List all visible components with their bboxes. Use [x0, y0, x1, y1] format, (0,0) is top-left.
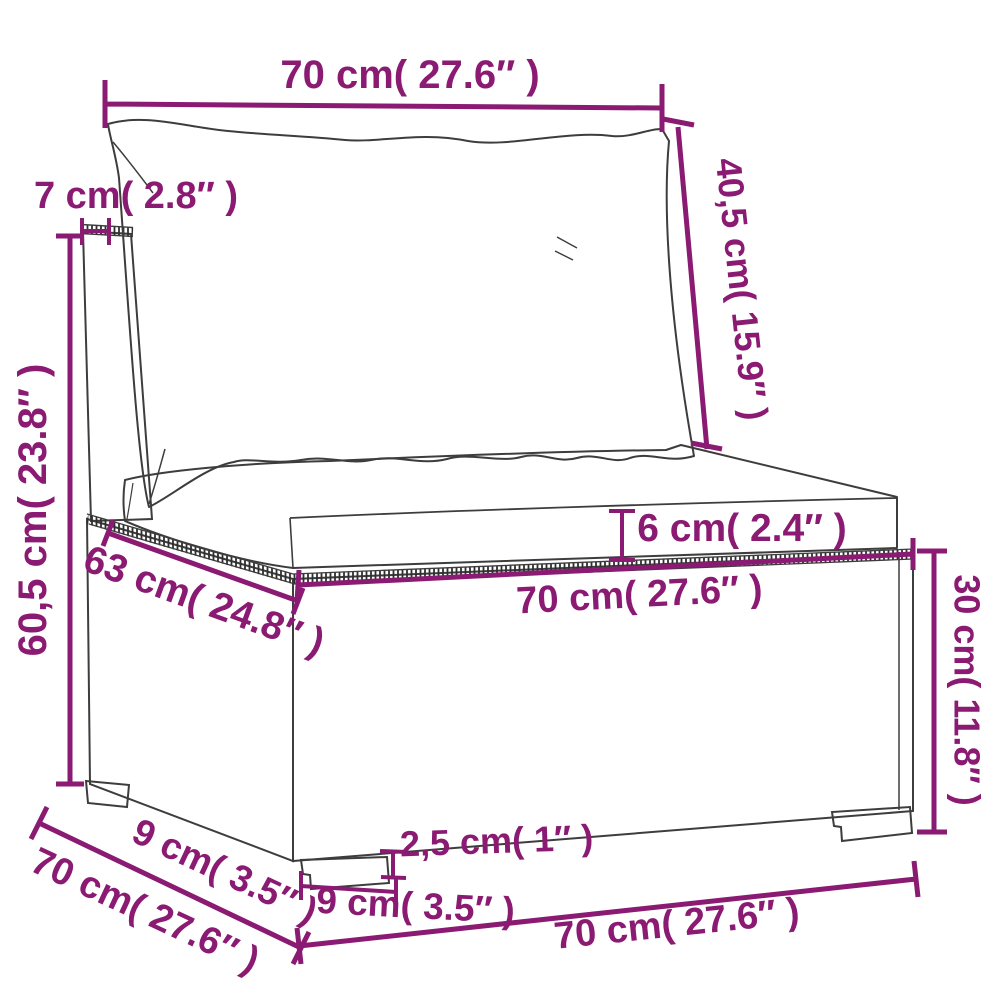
diagram-canvas: 70 cm( 27.6″ ) 7 cm( 2.8″ ) 60,5 cm( 23.…: [0, 0, 1000, 1000]
dim-back-cushion-width-label: 70 cm( 27.6″ ): [280, 53, 539, 97]
dim-foot-height-label: 2,5 cm( 1″ ): [399, 817, 594, 865]
dim-base-height-label: 30 cm( 11.8″ ): [947, 574, 988, 805]
sofa-dimension-diagram: 70 cm( 27.6″ ) 7 cm( 2.8″ ) 60,5 cm( 23.…: [0, 0, 1000, 1000]
dim-seat-cushion-thickness-label: 6 cm( 2.4″ ): [637, 507, 846, 550]
dim-total-height-label: 60,5 cm( 23.8″ ): [11, 364, 55, 657]
dim-back-frame-thickness-label: 7 cm( 2.8″ ): [34, 175, 238, 217]
